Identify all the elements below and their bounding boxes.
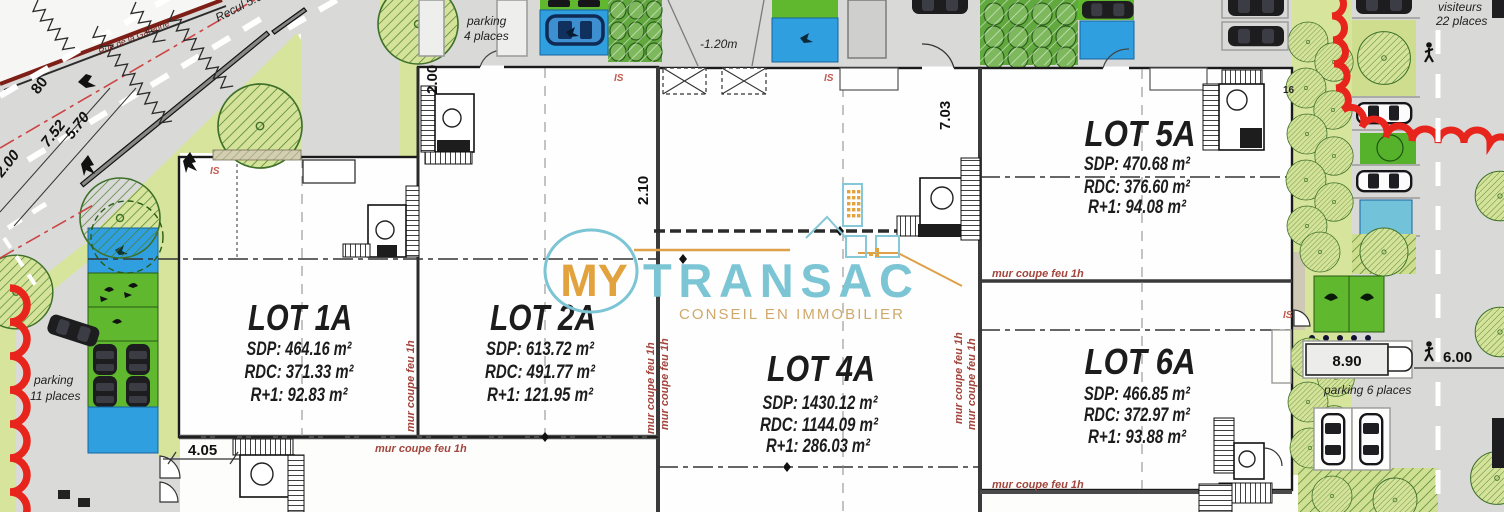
svg-text:IS: IS <box>1283 310 1293 321</box>
svg-text:8.90: 8.90 <box>1332 353 1361 370</box>
svg-text:SDP: 613.72 m²: SDP: 613.72 m² <box>486 339 595 360</box>
svg-text:mur coupe feu 1h: mur coupe feu 1h <box>659 338 671 430</box>
svg-text:7.03: 7.03 <box>937 101 954 130</box>
svg-text:R+1: 92.83 m²: R+1: 92.83 m² <box>251 385 349 406</box>
svg-text:RDC: 376.60 m²: RDC: 376.60 m² <box>1084 177 1191 198</box>
svg-text:4 places: 4 places <box>464 29 509 43</box>
svg-text:RDC: 372.97 m²: RDC: 372.97 m² <box>1084 405 1191 426</box>
svg-text:R+1: 286.03 m²: R+1: 286.03 m² <box>766 436 871 457</box>
svg-text:CONSEIL EN IMMOBILIER: CONSEIL EN IMMOBILIER <box>679 307 905 323</box>
svg-text:IS: IS <box>824 73 834 84</box>
svg-text:-1.20m: -1.20m <box>700 37 737 51</box>
svg-text:LOT 6A: LOT 6A <box>1085 341 1196 382</box>
svg-text:4.05: 4.05 <box>188 442 217 459</box>
svg-text:LOT 4A: LOT 4A <box>767 348 875 389</box>
svg-text:SDP: 466.85 m²: SDP: 466.85 m² <box>1084 384 1191 405</box>
svg-text:RDC: 491.77 m²: RDC: 491.77 m² <box>485 362 596 383</box>
svg-text:RDC: 1144.09 m²: RDC: 1144.09 m² <box>760 415 879 436</box>
svg-text:parking 6 places: parking 6 places <box>1323 383 1411 397</box>
svg-text:6.00: 6.00 <box>1443 349 1472 366</box>
svg-text:R+1: 94.08 m²: R+1: 94.08 m² <box>1088 197 1187 218</box>
svg-text:LOT 5A: LOT 5A <box>1085 113 1196 154</box>
svg-text:MY: MY <box>560 255 628 306</box>
svg-text:IS: IS <box>614 73 624 84</box>
svg-text:16: 16 <box>1283 85 1295 96</box>
svg-text:22 places: 22 places <box>1435 14 1487 28</box>
svg-text:R+1: 121.95 m²: R+1: 121.95 m² <box>487 385 594 406</box>
svg-text:R+1: 93.88 m²: R+1: 93.88 m² <box>1088 427 1187 448</box>
svg-text:mur coupe feu 1h: mur coupe feu 1h <box>992 479 1084 491</box>
svg-text:RDC: 371.33 m²: RDC: 371.33 m² <box>245 362 355 383</box>
svg-text:IS: IS <box>210 166 220 177</box>
svg-text:mur coupe feu 1h: mur coupe feu 1h <box>645 342 657 434</box>
svg-text:LOT 1A: LOT 1A <box>248 297 352 338</box>
svg-text:SDP: 1430.12 m²: SDP: 1430.12 m² <box>763 393 879 414</box>
svg-text:mur coupe feu 1h: mur coupe feu 1h <box>966 338 978 430</box>
svg-text:visiteurs: visiteurs <box>1438 0 1482 14</box>
svg-text:mur coupe feu 1h: mur coupe feu 1h <box>375 443 467 455</box>
svg-text:mur coupe feu 1h: mur coupe feu 1h <box>992 268 1084 280</box>
svg-text:2.10: 2.10 <box>635 176 652 205</box>
svg-text:mur coupe feu 1h: mur coupe feu 1h <box>405 340 417 432</box>
svg-text:2.00: 2.00 <box>424 65 441 94</box>
svg-text:mur coupe feu 1h: mur coupe feu 1h <box>953 332 965 424</box>
svg-text:parking: parking <box>466 14 507 28</box>
svg-text:SDP: 464.16 m²: SDP: 464.16 m² <box>247 339 353 360</box>
svg-text:SDP: 470.68 m²: SDP: 470.68 m² <box>1084 154 1191 175</box>
svg-text:11 places: 11 places <box>30 389 80 403</box>
svg-text:parking: parking <box>33 373 74 387</box>
